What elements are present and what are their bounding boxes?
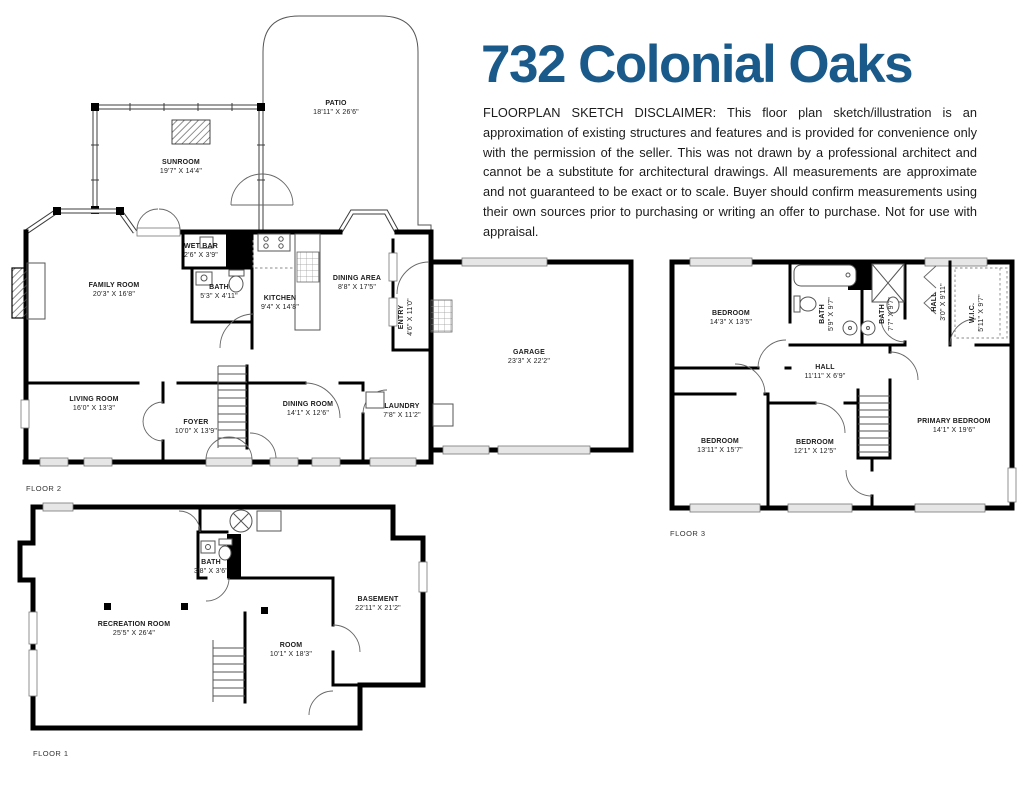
room-label-garage: GARAGE 23'3" X 22'2"	[508, 348, 550, 366]
room-label-foyer: FOYER 10'0" X 13'9"	[175, 418, 217, 436]
laundry-appliance	[366, 392, 384, 408]
floorplan-page: 732 Colonial Oaks FLOORPLAN SKETCH DISCL…	[0, 0, 1024, 791]
room-label-wic: W.I.C. 5'11" X 9'7"	[968, 294, 986, 332]
room-label-bath-floor1: BATH 3'8" X 3'6"	[194, 558, 228, 576]
staircase-floor2	[218, 366, 247, 448]
chimney	[226, 233, 252, 267]
floor1-plan	[20, 503, 427, 728]
hearth	[27, 263, 45, 319]
room-label-sunroom: SUNROOM 19'7" X 14'4"	[160, 158, 202, 176]
room-label-bath-floor2: BATH 5'3" X 4'11"	[200, 283, 238, 301]
staircase-floor3	[858, 396, 890, 452]
kitchen-fixtures	[253, 234, 320, 330]
skylight-hatch	[172, 120, 210, 144]
room-label-basement: BASEMENT 22'11" X 21'2"	[355, 595, 401, 613]
support-post	[181, 603, 188, 610]
room-label-hall: HALL 11'11" X 6'9"	[804, 363, 845, 381]
front-door-opening	[206, 458, 252, 466]
room-label-patio: PATIO 18'11" X 26'6"	[313, 99, 359, 117]
room-label-living-room: LIVING ROOM 16'0" X 13'3"	[69, 395, 118, 413]
page-title: 732 Colonial Oaks	[481, 34, 981, 95]
room-label-bedroom1: BEDROOM 14'3" X 13'5"	[710, 309, 752, 327]
room-label-bedroom3: BEDROOM 12'1" X 12'5"	[794, 438, 836, 456]
floor3-exterior-walls	[672, 262, 1012, 508]
floor-label-2: FLOOR 2	[26, 484, 62, 493]
stove	[258, 234, 290, 251]
room-label-wet-bar: WET BAR 2'6" X 3'9"	[184, 242, 218, 260]
support-post	[104, 603, 111, 610]
room-label-primary-bedroom: PRIMARY BEDROOM 14'1" X 19'6"	[917, 417, 990, 435]
room-label-bath2-floor3: BATH 7'7" X 9'7"	[878, 297, 896, 331]
fireplace	[12, 268, 27, 318]
bathtub	[794, 265, 856, 286]
bay-windows	[26, 207, 397, 232]
disclaimer-text: FLOORPLAN SKETCH DISCLAIMER: This floor …	[483, 103, 977, 242]
range-grid	[297, 252, 319, 282]
room-label-bath1-floor3: BATH 5'9" X 9'7"	[818, 297, 836, 331]
garage-closet	[431, 300, 452, 332]
sink	[861, 321, 875, 335]
utility-sink	[433, 404, 453, 426]
room-label-dining-area: DINING AREA 8'8" X 17'5"	[333, 274, 381, 292]
floor3-plan	[672, 258, 1016, 512]
furnace	[257, 511, 281, 531]
room-label-entry: ENTRY 4'6" X 11'0"	[397, 298, 415, 336]
support-post	[261, 607, 268, 614]
french-door-opening	[137, 228, 180, 236]
floor-label-1: FLOOR 1	[33, 749, 69, 758]
toilet	[800, 297, 816, 311]
floor-label-3: FLOOR 3	[670, 529, 706, 538]
toilet-tank	[229, 270, 244, 276]
room-label-bedroom2: BEDROOM 13'11" X 15'7"	[697, 437, 743, 455]
room-label-hall-small: HALL 3'0" X 9'11"	[930, 283, 948, 321]
room-label-family-room: FAMILY ROOM 20'3" X 16'8"	[89, 281, 140, 299]
room-label-recreation-room: RECREATION ROOM 25'5" X 26'4"	[98, 620, 170, 638]
room-label-dining-room: DINING ROOM 14'1" X 12'6"	[283, 400, 333, 418]
room-label-room: ROOM 10'1" X 18'3"	[270, 641, 312, 659]
room-label-kitchen: KITCHEN 9'4" X 14'8"	[261, 294, 299, 312]
bath-sink	[201, 541, 215, 553]
sink	[843, 321, 857, 335]
room-label-laundry: LAUNDRY 7'8" X 11'2"	[383, 402, 421, 420]
staircase-floor1	[213, 640, 245, 702]
